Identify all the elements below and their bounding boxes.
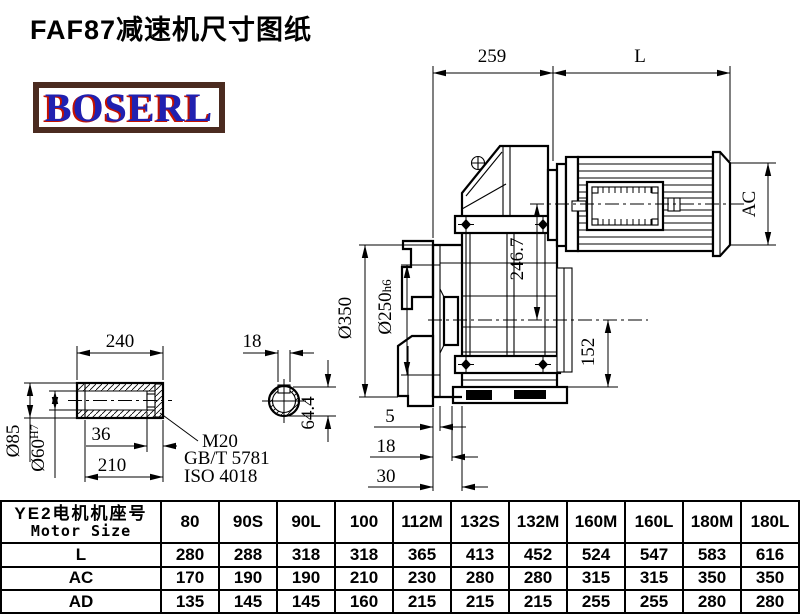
table-cell: 318 [277,543,335,566]
table-cell: 135 [161,590,219,613]
column-header: 90L [277,501,335,543]
column-header: 160M [567,501,625,543]
table-cell: 280 [509,567,567,590]
table-cell: 280 [741,590,799,613]
column-header: 100 [335,501,393,543]
dim-250h6-label: Ø250h6 [375,279,396,335]
table-row-L: L 280 288 318 318 365 413 452 524 547 58… [1,543,799,566]
table-cell: 315 [625,567,683,590]
table-cell: 210 [335,567,393,590]
dim-5-label: 5 [385,406,395,427]
column-header: 112M [393,501,451,543]
table-cell: 280 [161,543,219,566]
output-flange [398,241,462,406]
dim-60H7-label: Ø60H7 [27,424,49,471]
motor-size-header: YE2电机机座号 Motor Size [1,501,161,543]
table-cell: 616 [741,543,799,566]
dim-5-18-30: 5 18 30 [368,406,488,491]
column-header: 160L [625,501,683,543]
standard-iso-label: ISO 4018 [184,466,257,487]
dim-210-label: 210 [98,455,127,476]
table-cell: 255 [567,590,625,613]
table-cell: 145 [277,590,335,613]
column-header: 132M [509,501,567,543]
dim-30-label: 30 [377,466,396,487]
table-cell: 190 [277,567,335,590]
column-header: 132S [451,501,509,543]
table-cell: 280 [451,567,509,590]
table-cell: 215 [509,590,567,613]
dim-36-label: 36 [92,424,111,445]
table-cell: 452 [509,543,567,566]
dim-64-4-label: 64.4 [298,396,319,430]
table-cell: 255 [625,590,683,613]
table-row-AC: AC 170 190 190 210 230 280 280 315 315 3… [1,567,799,590]
dim-18-keyway-label: 18 [243,331,262,352]
table-cell: 350 [683,567,741,590]
table-cell: 170 [161,567,219,590]
dim-152-label: 152 [578,338,599,367]
column-header: 180L [741,501,799,543]
table-cell: 350 [741,567,799,590]
dim-246-7-label: 246.7 [507,238,528,281]
dim-85-label: Ø85 [3,425,24,458]
dim-18-keyway: 18 [243,331,315,382]
hollow-shaft-detail: 240 Ø85 Ø60H7 36 210 M20 GB/T 5781 [3,331,270,487]
table-cell: 318 [335,543,393,566]
table-row-AD: AD 135 145 145 160 215 215 215 255 255 2… [1,590,799,613]
shaft-end-view: 18 64.4 [243,331,337,442]
table-header-row: YE2电机机座号 Motor Size 80 90S 90L 100 112M … [1,501,799,543]
column-header: 80 [161,501,219,543]
table-cell: 288 [219,543,277,566]
dim-18-side-label: 18 [377,436,396,457]
dim-259-label: 259 [478,46,507,67]
dim-350-label: Ø350 [335,297,356,339]
motor-size-header-en: Motor Size [2,523,160,540]
table-cell: 315 [567,567,625,590]
row-label: AD [1,590,161,613]
table-cell: 280 [683,590,741,613]
table-cell: 230 [393,567,451,590]
table-cell: 583 [683,543,741,566]
row-label: L [1,543,161,566]
motor-size-header-cn: YE2电机机座号 [2,504,160,524]
dim-60H7: Ø60H7 [27,391,77,478]
table-cell: 160 [335,590,393,613]
column-header: 180M [683,501,741,543]
thread-callout: M20 GB/T 5781 ISO 4018 [160,413,270,487]
dim-240-label: 240 [106,331,135,352]
table-cell: 413 [451,543,509,566]
table-cell: 145 [219,590,277,613]
eyebolt-icon [472,157,485,170]
dim-240: 240 [77,331,163,380]
table-cell: 215 [451,590,509,613]
dim-152: 152 [567,320,618,387]
dim-L-label: L [634,46,646,67]
row-label: AC [1,567,161,590]
table-cell: 547 [625,543,683,566]
technical-drawing: 259 L AC 246.7 152 Ø350 Ø250h6 5 18 30 [0,0,800,500]
dim-AC-label: AC [739,191,760,217]
column-header: 90S [219,501,277,543]
table-cell: 215 [393,590,451,613]
table-cell: 524 [567,543,625,566]
table-cell: 365 [393,543,451,566]
table-cell: 190 [219,567,277,590]
motor-spec-table: YE2电机机座号 Motor Size 80 90S 90L 100 112M … [0,500,800,614]
